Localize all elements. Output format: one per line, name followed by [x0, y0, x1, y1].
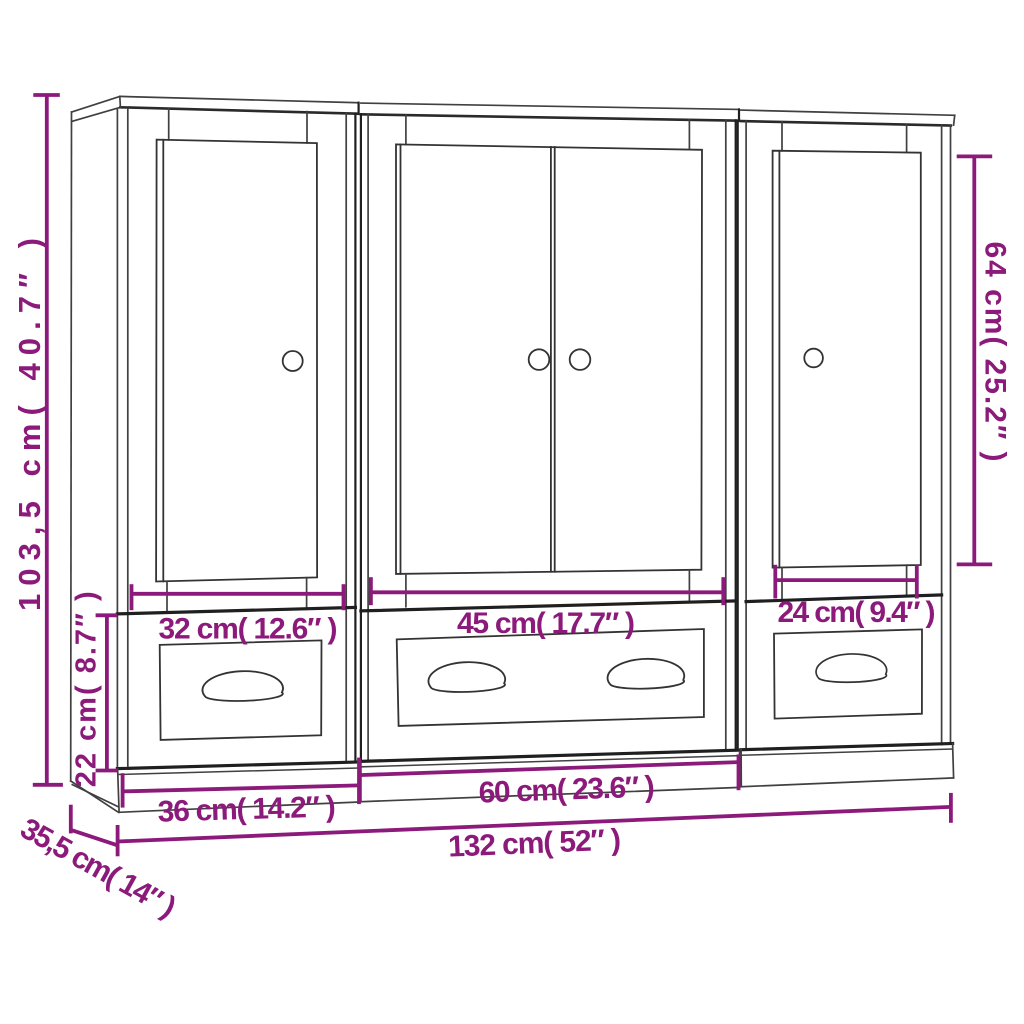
svg-text:22 cm( 8.7″ ): 22 cm( 8.7″ ): [71, 591, 103, 787]
svg-text:64 cm( 25.2″ ): 64 cm( 25.2″ ): [979, 242, 1012, 462]
svg-text:36 cm( 14.2″ ): 36 cm( 14.2″ ): [157, 790, 336, 828]
svg-text:24 cm( 9.4″ ): 24 cm( 9.4″ ): [778, 596, 936, 629]
svg-text:32 cm( 12.6″ ): 32 cm( 12.6″ ): [159, 613, 338, 646]
svg-text:45 cm( 17.7″ ): 45 cm( 17.7″ ): [457, 607, 635, 640]
svg-text:60 cm( 23.6″ ): 60 cm( 23.6″ ): [478, 770, 655, 809]
